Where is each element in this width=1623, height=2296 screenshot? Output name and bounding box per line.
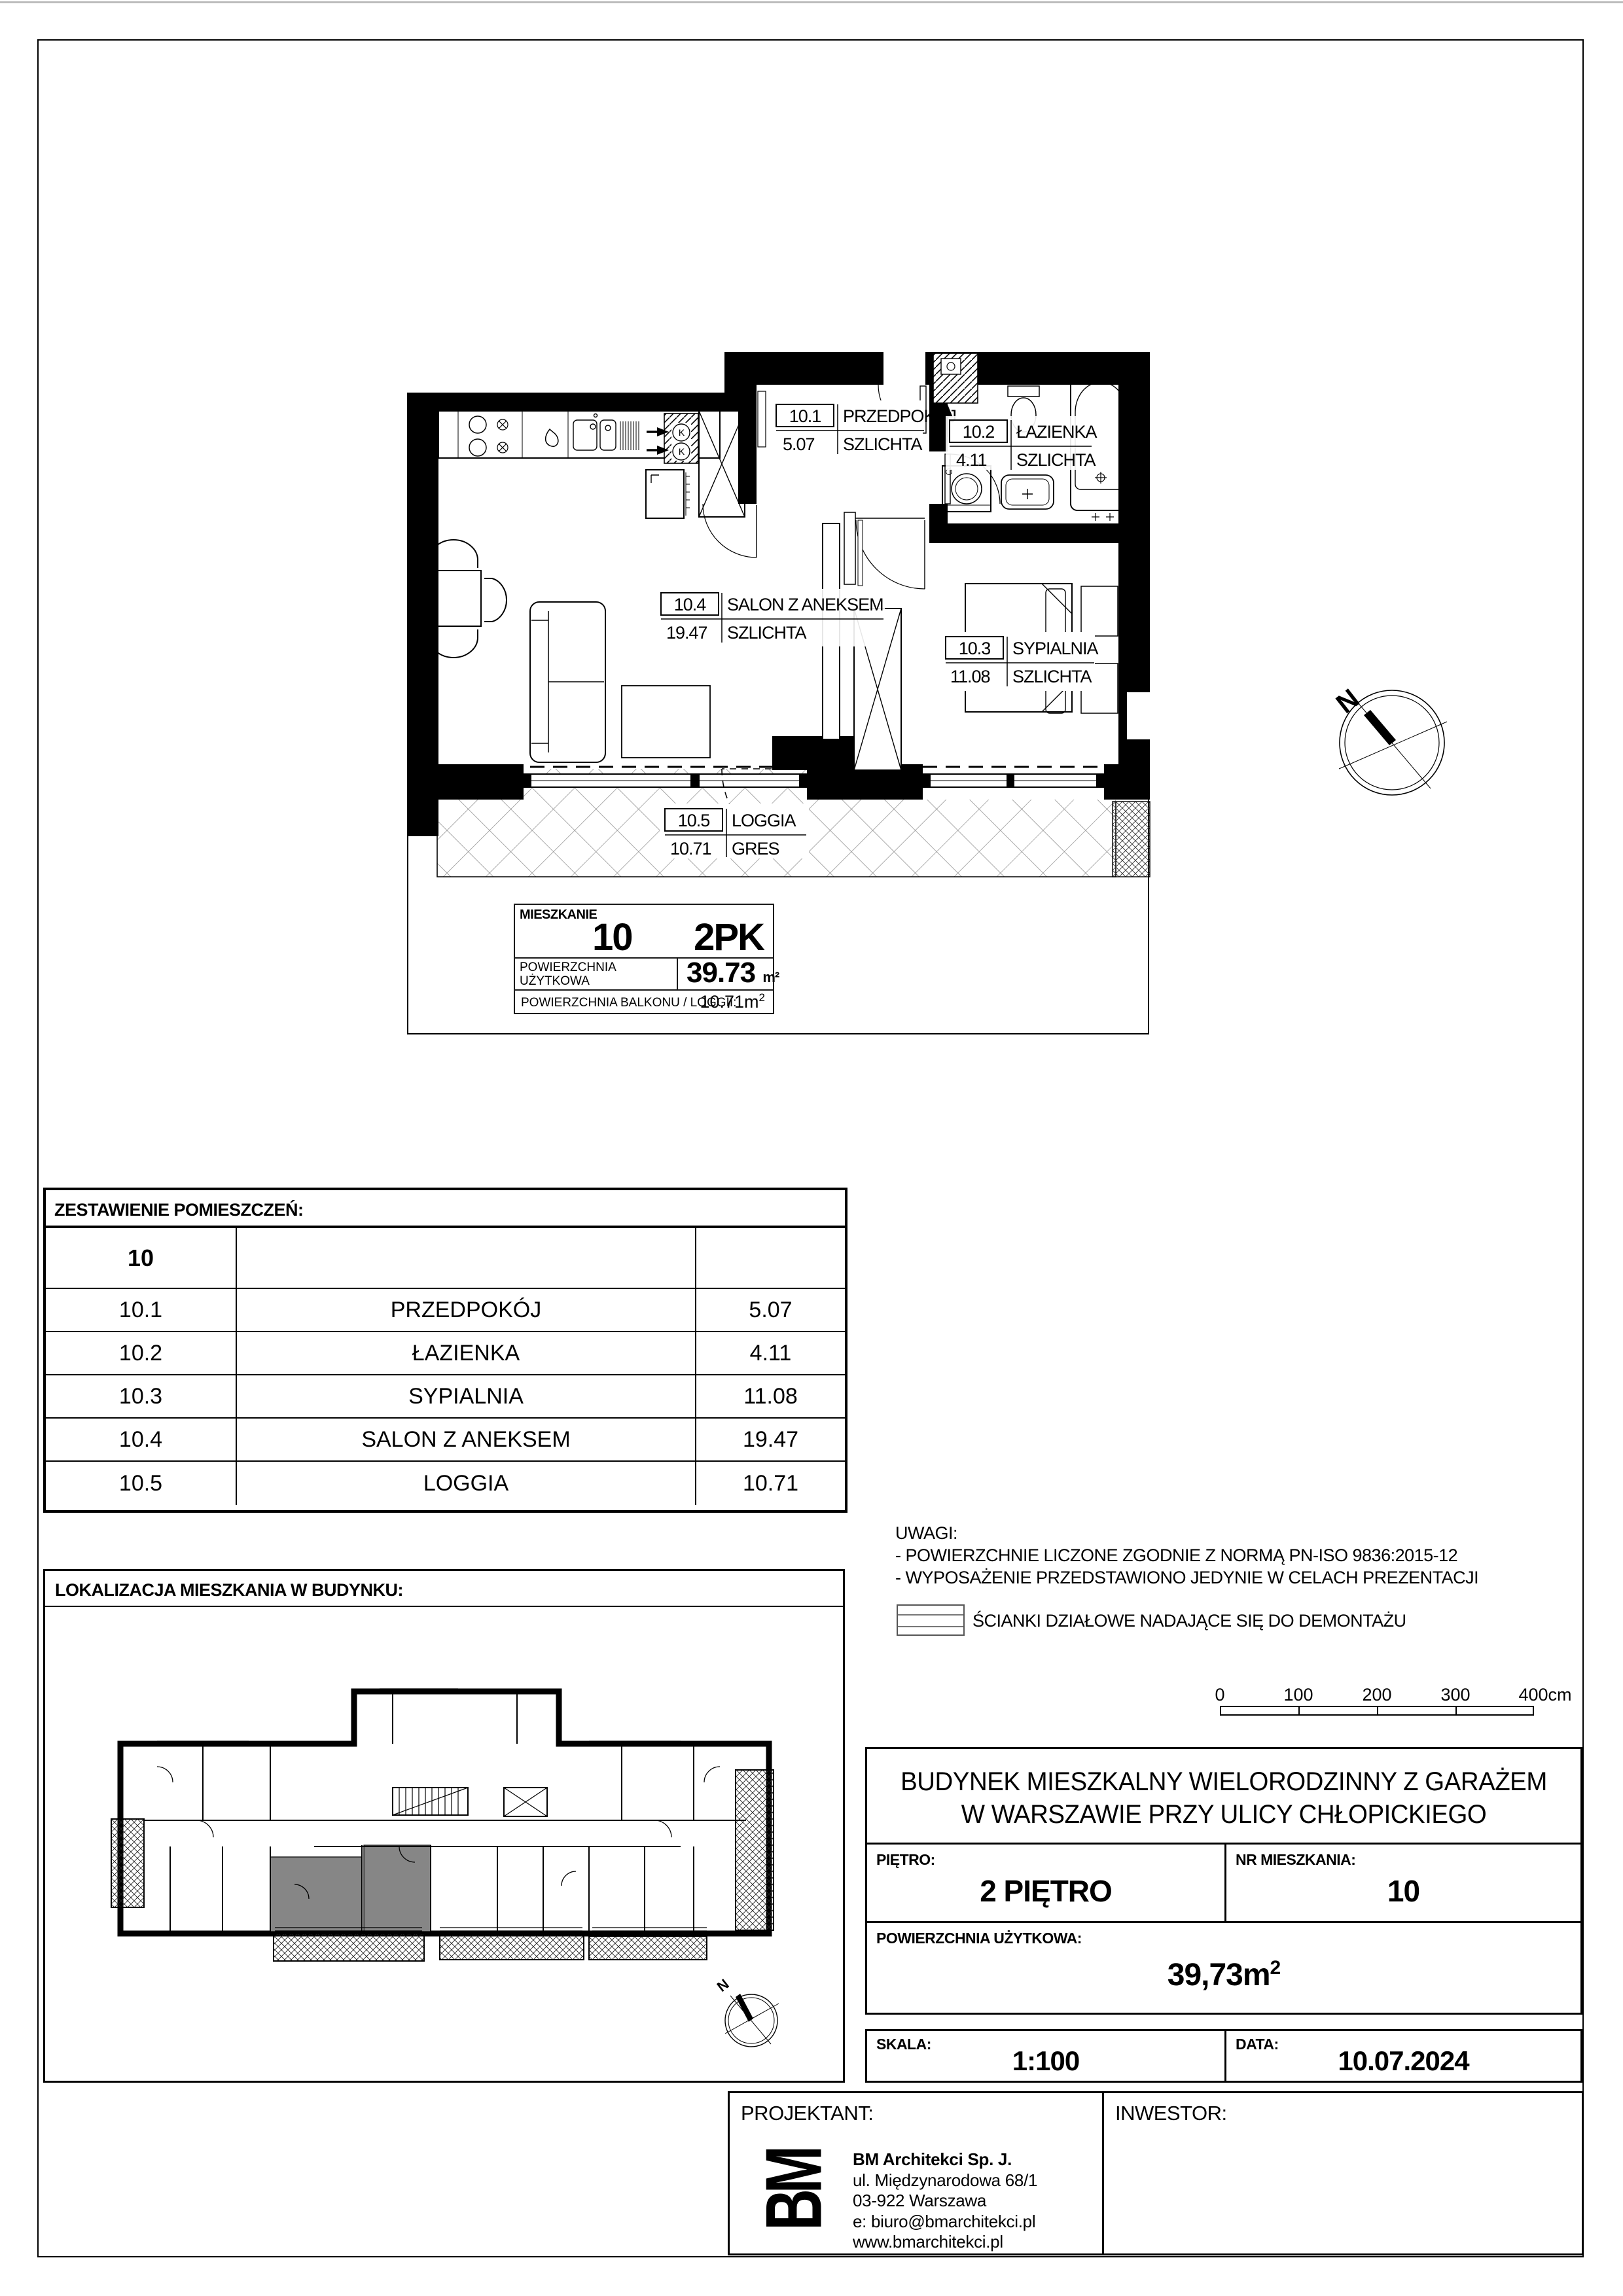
scale-bar: 0 100 200 300 400cm bbox=[1210, 1685, 1577, 1718]
svg-text:SZLICHTA: SZLICHTA bbox=[1012, 667, 1092, 686]
notes-title: UWAGI: bbox=[895, 1522, 1589, 1544]
svg-text:10.2: 10.2 bbox=[963, 422, 995, 442]
apartment-no-cell: NR MIESZKANIA: 10 bbox=[1226, 1845, 1580, 1921]
designer-address: BM Architekci Sp. J. ul. Międzynarodowa … bbox=[853, 2149, 1037, 2253]
notes-block: UWAGI: - POWIERZCHNIE LICZONE ZGODNIE Z … bbox=[895, 1522, 1589, 1589]
dining-table bbox=[427, 540, 507, 658]
demountable-wall-swatch bbox=[897, 1604, 965, 1636]
scale-tick-label: 200 bbox=[1362, 1685, 1391, 1705]
divider bbox=[677, 959, 678, 989]
north-letter: N bbox=[1330, 683, 1364, 719]
table-header: ZESTAWIENIE POMIESZCZEŃ: bbox=[46, 1190, 845, 1228]
sink-icon bbox=[573, 414, 616, 451]
address-line: ul. Międzynarodowa 68/1 bbox=[853, 2170, 1037, 2191]
sliding-door bbox=[844, 512, 855, 584]
designer-investor-strip: PROJEKTANT: BM BM Architekci Sp. J. ul. … bbox=[728, 2091, 1584, 2255]
svg-text:4.11: 4.11 bbox=[956, 450, 987, 470]
apartment-label: MIESZKANIE bbox=[520, 908, 597, 923]
apartment-type: 2PK bbox=[694, 915, 764, 959]
note-line: - POWIERZCHNIE LICZONE ZGODNIE Z NORMĄ P… bbox=[895, 1544, 1589, 1566]
investor-cell: INWESTOR: bbox=[1104, 2093, 1582, 2253]
svg-text:19.47: 19.47 bbox=[666, 623, 707, 643]
room-label-loggia: 10.5 LOGGIA 10.71 GRES bbox=[660, 804, 809, 858]
apartment-number: 10 bbox=[592, 915, 632, 959]
company-name: BM Architekci Sp. J. bbox=[853, 2149, 1037, 2170]
svg-text:ŁAZIENKA: ŁAZIENKA bbox=[1016, 422, 1097, 442]
room-label-salon: 10.4 SALON Z ANEKSEM 19.47 SZLICHTA bbox=[657, 589, 885, 646]
kitchen-shaft: K K bbox=[647, 414, 698, 463]
bm-architekci-logo: BM bbox=[748, 2143, 840, 2238]
address-line: e: biuro@bmarchitekci.pl bbox=[853, 2212, 1037, 2233]
project-title: BUDYNEK MIESZKALNY WIELORODZINNY Z GARAŻ… bbox=[867, 1749, 1580, 1845]
scale-bar-rule bbox=[1220, 1706, 1534, 1716]
north-arrow-icon: N bbox=[1322, 667, 1466, 818]
title-block: BUDYNEK MIESZKALNY WIELORODZINNY Z GARAŻ… bbox=[865, 1747, 1582, 2015]
svg-text:SZLICHTA: SZLICHTA bbox=[843, 434, 923, 454]
address-line: www.bmarchitekci.pl bbox=[853, 2232, 1037, 2253]
floor-cell: PIĘTRO: 2 PIĘTRO bbox=[867, 1845, 1226, 1921]
svg-text:10.5: 10.5 bbox=[678, 811, 710, 830]
usable-area-label: POWIERZCHNIA UŻYTKOWA: bbox=[876, 1930, 1082, 1947]
svg-text:10.1: 10.1 bbox=[789, 406, 821, 426]
designer-cell: PROJEKTANT: BM BM Architekci Sp. J. ul. … bbox=[730, 2093, 1104, 2253]
room-schedule-table: ZESTAWIENIE POMIESZCZEŃ: 10 10.1 PRZEDPO… bbox=[43, 1188, 847, 1513]
legend-row: ŚCIANKI DZIAŁOWE NADAJĄCE SIĘ DO DEMONTA… bbox=[895, 1604, 1589, 1638]
scale-value: 1:100 bbox=[867, 2045, 1224, 2077]
usable-area-cell: POWIERZCHNIA UŻYTKOWA: 39,73m2 bbox=[867, 1923, 1580, 2013]
legend-text: ŚCIANKI DZIAŁOWE NADAJĄCE SIĘ DO DEMONTA… bbox=[972, 1611, 1406, 1631]
entrance-shaft bbox=[933, 353, 978, 403]
gas-icon bbox=[546, 429, 558, 446]
apartment-no-value: 10 bbox=[1226, 1873, 1580, 1909]
apartment-no-label: NR MIESZKANIA: bbox=[1236, 1851, 1355, 1869]
tall-cabinet bbox=[699, 411, 745, 517]
key-plan-north-arrow-icon: N bbox=[714, 1976, 779, 2047]
room-label-sypialnia: 10.3 SYPIALNIA 11.08 SZLICHTA bbox=[941, 632, 1099, 691]
room-label-lazienka: 10.2 ŁAZIENKA 4.11 SZLICHTA bbox=[946, 416, 1097, 470]
scale-date-block: SKALA: 1:100 DATA: 10.07.2024 bbox=[865, 2029, 1582, 2083]
svg-text:SZLICHTA: SZLICHTA bbox=[1016, 450, 1096, 470]
svg-text:GRES: GRES bbox=[732, 839, 779, 858]
date-cell: DATA: 10.07.2024 bbox=[1226, 2031, 1580, 2081]
balcony-area-value: 10.71m2 bbox=[700, 991, 765, 1012]
hall-closet bbox=[758, 391, 766, 447]
table-row: 10.4 SALON Z ANEKSEM 19.47 bbox=[46, 1419, 845, 1462]
svg-text:10.4: 10.4 bbox=[674, 595, 707, 614]
svg-text:PRZEDPOKÓJ: PRZEDPOKÓJ bbox=[843, 406, 956, 426]
svg-text:10.71: 10.71 bbox=[670, 839, 711, 858]
room-label-przedpokoj: 10.1 PRZEDPOKÓJ 5.07 SZLICHTA bbox=[772, 400, 956, 455]
svg-text:11.08: 11.08 bbox=[950, 667, 990, 686]
info-box-row-balcony: POWIERZCHNIA BALKONU / LOGGII: 10.71m2 bbox=[515, 991, 773, 1013]
drainer bbox=[620, 421, 639, 450]
scale-cell: SKALA: 1:100 bbox=[867, 2031, 1226, 2081]
building-key-plan: N bbox=[43, 1569, 845, 2083]
floor-value: 2 PIĘTRO bbox=[867, 1873, 1224, 1909]
highlighted-apartment bbox=[270, 1845, 431, 1932]
scale-tick-label: 300 bbox=[1440, 1685, 1470, 1705]
svg-text:SALON Z ANEKSEM: SALON Z ANEKSEM bbox=[727, 595, 883, 614]
apartment-info-box: MIESZKANIE 10 2PK POWIERZCHNIA UŻYTKOWA … bbox=[514, 904, 774, 1014]
info-box-row-number: MIESZKANIE 10 2PK bbox=[515, 905, 773, 959]
washbasin-icon bbox=[1001, 475, 1054, 509]
usable-area-value: 39,73m2 bbox=[867, 1957, 1580, 1993]
svg-text:LOGGIA: LOGGIA bbox=[732, 811, 796, 830]
info-box-row-area: POWIERZCHNIA UŻYTKOWA 39.73 m² bbox=[515, 959, 773, 991]
floor-label: PIĘTRO: bbox=[876, 1851, 935, 1869]
floorplan-sheet: { "plan": { "north_label": "N", "kitchen… bbox=[0, 0, 1623, 2296]
usable-area-value: 39.73 m² bbox=[687, 957, 779, 989]
scan-artifact-line bbox=[0, 1, 1623, 3]
table-row: 10.2 ŁAZIENKA 4.11 bbox=[46, 1332, 845, 1375]
north-letter: N bbox=[714, 1976, 732, 1995]
salon-door bbox=[703, 504, 757, 557]
table-row: 10 bbox=[46, 1228, 845, 1289]
usable-area-label: POWIERZCHNIA UŻYTKOWA bbox=[520, 961, 616, 988]
table-row: 10.1 PRZEDPOKÓJ 5.07 bbox=[46, 1289, 845, 1332]
table-row: 10.5 LOGGIA 10.71 bbox=[46, 1462, 845, 1505]
svg-text:SZLICHTA: SZLICHTA bbox=[727, 623, 807, 643]
designer-label: PROJEKTANT: bbox=[741, 2102, 873, 2125]
coffee-table bbox=[622, 686, 710, 758]
investor-label: INWESTOR: bbox=[1115, 2102, 1227, 2125]
svg-text:SYPIALNIA: SYPIALNIA bbox=[1012, 639, 1099, 658]
scale-tick-label: 0 bbox=[1215, 1685, 1224, 1705]
note-line: - WYPOSAŻENIE PRZEDSTAWIONO JEDYNIE W CE… bbox=[895, 1566, 1589, 1589]
svg-text:5.07: 5.07 bbox=[783, 434, 815, 454]
sofa-icon bbox=[530, 602, 605, 762]
address-line: 03-922 Warszawa bbox=[853, 2191, 1037, 2212]
scale-tick-label: 100 bbox=[1283, 1685, 1313, 1705]
date-value: 10.07.2024 bbox=[1226, 2045, 1580, 2077]
nightstand bbox=[1081, 586, 1118, 636]
wall-niche bbox=[1127, 692, 1150, 739]
fridge-icon bbox=[646, 470, 690, 518]
hob-small-burners bbox=[497, 419, 508, 453]
table-row: 10.3 SYPIALNIA 11.08 bbox=[46, 1375, 845, 1419]
scale-tick-label: 400cm bbox=[1518, 1685, 1571, 1705]
apartment-no-cell: 10 bbox=[46, 1228, 237, 1288]
bedroom-door bbox=[855, 518, 925, 589]
svg-text:10.3: 10.3 bbox=[959, 639, 991, 658]
